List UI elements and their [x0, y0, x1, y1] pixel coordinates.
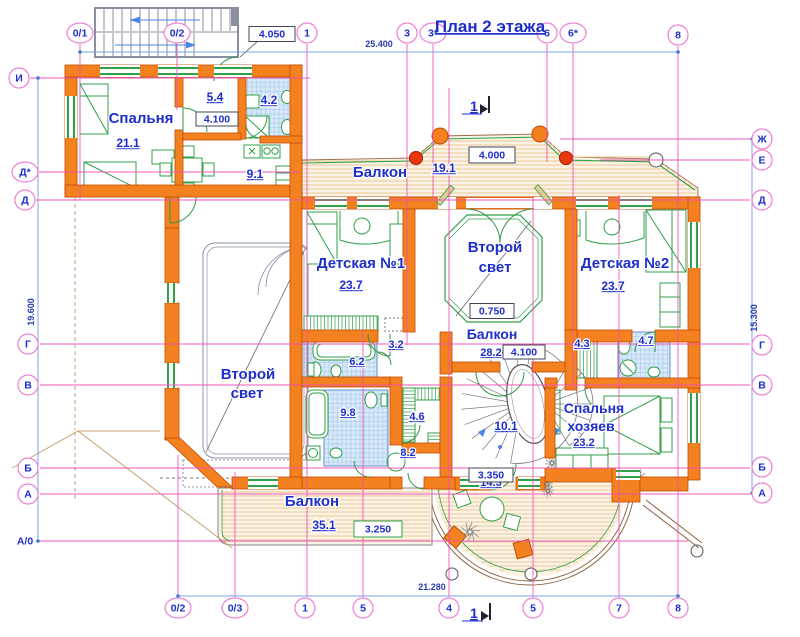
axis-label: 0/1 [73, 28, 88, 40]
room-area: 28.2 [480, 347, 501, 359]
axis-label: 3 [404, 28, 410, 40]
room-area: 23.7 [339, 278, 363, 292]
dim-box-value: 4.100 [204, 114, 230, 126]
axis-label: Ж [756, 134, 767, 146]
stair-direction-arrow [478, 428, 486, 437]
room-area: 9.8 [340, 407, 355, 419]
room-area: 8.2 [400, 447, 415, 459]
room-area: 6.2 [349, 356, 364, 368]
column-icon [410, 152, 423, 165]
room-area: 4.3 [574, 338, 589, 350]
axis-label: 1 [302, 603, 308, 615]
room-name: Детская №1 [317, 255, 405, 272]
sink [330, 448, 342, 458]
axis-label: Д [758, 195, 766, 207]
room-name: Спальня [109, 110, 174, 127]
axis-label: Е [758, 155, 765, 167]
dim-box-value: 4.100 [511, 347, 537, 359]
chair [503, 513, 520, 530]
room-area: 4.7 [638, 335, 653, 347]
axis-label: 7 [616, 603, 622, 615]
svg-text:1: 1 [470, 98, 478, 114]
round-table [480, 497, 504, 521]
axis-label: 0/2 [171, 603, 186, 615]
room-name: Балкон [467, 326, 518, 342]
dim-bottom: 21.280 [418, 582, 446, 592]
axis-label: 5 [530, 603, 536, 615]
axis-label: Б [24, 463, 32, 475]
room-area: 5.4 [207, 90, 224, 104]
column-icon [525, 568, 537, 580]
room-name: хозяев [567, 418, 615, 434]
axis-label: 8 [675, 30, 681, 42]
room-name: Балкон [353, 164, 407, 181]
room-area: 23.7 [601, 279, 625, 293]
axis-label: Д [21, 195, 29, 207]
column-icon [560, 152, 573, 165]
room-name: свет [231, 385, 264, 402]
axis-label: 0/2 [170, 28, 185, 40]
axis-label: 1 [304, 28, 310, 40]
chair [604, 219, 620, 235]
dim-right: 15.300 [749, 304, 759, 332]
washer [246, 95, 259, 108]
column-icon [446, 568, 458, 580]
axis-label: 5 [360, 603, 366, 615]
column-icon [513, 539, 533, 559]
floor-plan-drawing: 25.400 21.280 19.600 15.300 Спальня21.15… [0, 0, 800, 637]
room-area: 21.1 [116, 136, 140, 150]
axis-label: И [15, 73, 23, 85]
axis-label: 8 [675, 603, 681, 615]
room-name: Балкон [285, 493, 339, 510]
desk [340, 211, 398, 244]
svg-text:1: 1 [470, 605, 478, 621]
axis-label: В [758, 380, 766, 392]
desk [586, 211, 644, 244]
sink [648, 367, 660, 377]
room-area: 4.6 [409, 411, 424, 423]
axis-label: 0/3 [228, 603, 243, 615]
room-area: 3.2 [388, 339, 403, 351]
chair [354, 218, 370, 234]
axis-label: 6* [568, 28, 579, 40]
axis-label: А/0 [17, 536, 34, 548]
room-area: 23.2 [573, 437, 594, 449]
column-icon [532, 126, 548, 142]
section-mark-bottom: 1 [462, 603, 490, 621]
axis-label: Г [759, 340, 765, 352]
table [152, 150, 174, 164]
room-name: Второй [221, 366, 276, 383]
room-name: Спальня [564, 400, 624, 416]
room-name: Второй [468, 239, 523, 256]
dim-box-value: 3.250 [365, 524, 391, 536]
dim-box-value: 4.000 [479, 150, 505, 162]
sink [331, 365, 341, 377]
room-area: 4.2 [261, 93, 278, 107]
column-icon [432, 128, 448, 144]
room-name: Детская №2 [581, 255, 669, 272]
cabinet [660, 283, 680, 327]
axis-label: А [24, 489, 32, 501]
axis-label: В [24, 380, 32, 392]
dim-left: 19.600 [26, 298, 36, 326]
page-title: План 2 этажа [435, 17, 546, 36]
axis-label: Б [758, 462, 766, 474]
axis-label: 4 [446, 603, 452, 615]
dim-box-value: 0.750 [479, 306, 505, 318]
axis-label: Д* [19, 167, 31, 179]
axis-label: А [758, 488, 766, 500]
sofa [556, 448, 608, 470]
room-area: 19.1 [432, 161, 456, 175]
section-mark-top: 1 [462, 96, 489, 114]
floor-plan-canvas: 25.400 21.280 19.600 15.300 Спальня21.15… [0, 0, 800, 637]
room-area: 35.1 [312, 518, 336, 532]
dim-box-value: 4.050 [259, 29, 285, 41]
dim-box-value: 3.350 [478, 470, 504, 482]
toilet [365, 392, 377, 408]
room-name: свет [479, 259, 512, 276]
axis-label: Г [25, 339, 31, 351]
room-area: 9.1 [247, 167, 264, 181]
room-area: 10.1 [494, 419, 518, 433]
dim-top: 25.400 [365, 39, 393, 49]
